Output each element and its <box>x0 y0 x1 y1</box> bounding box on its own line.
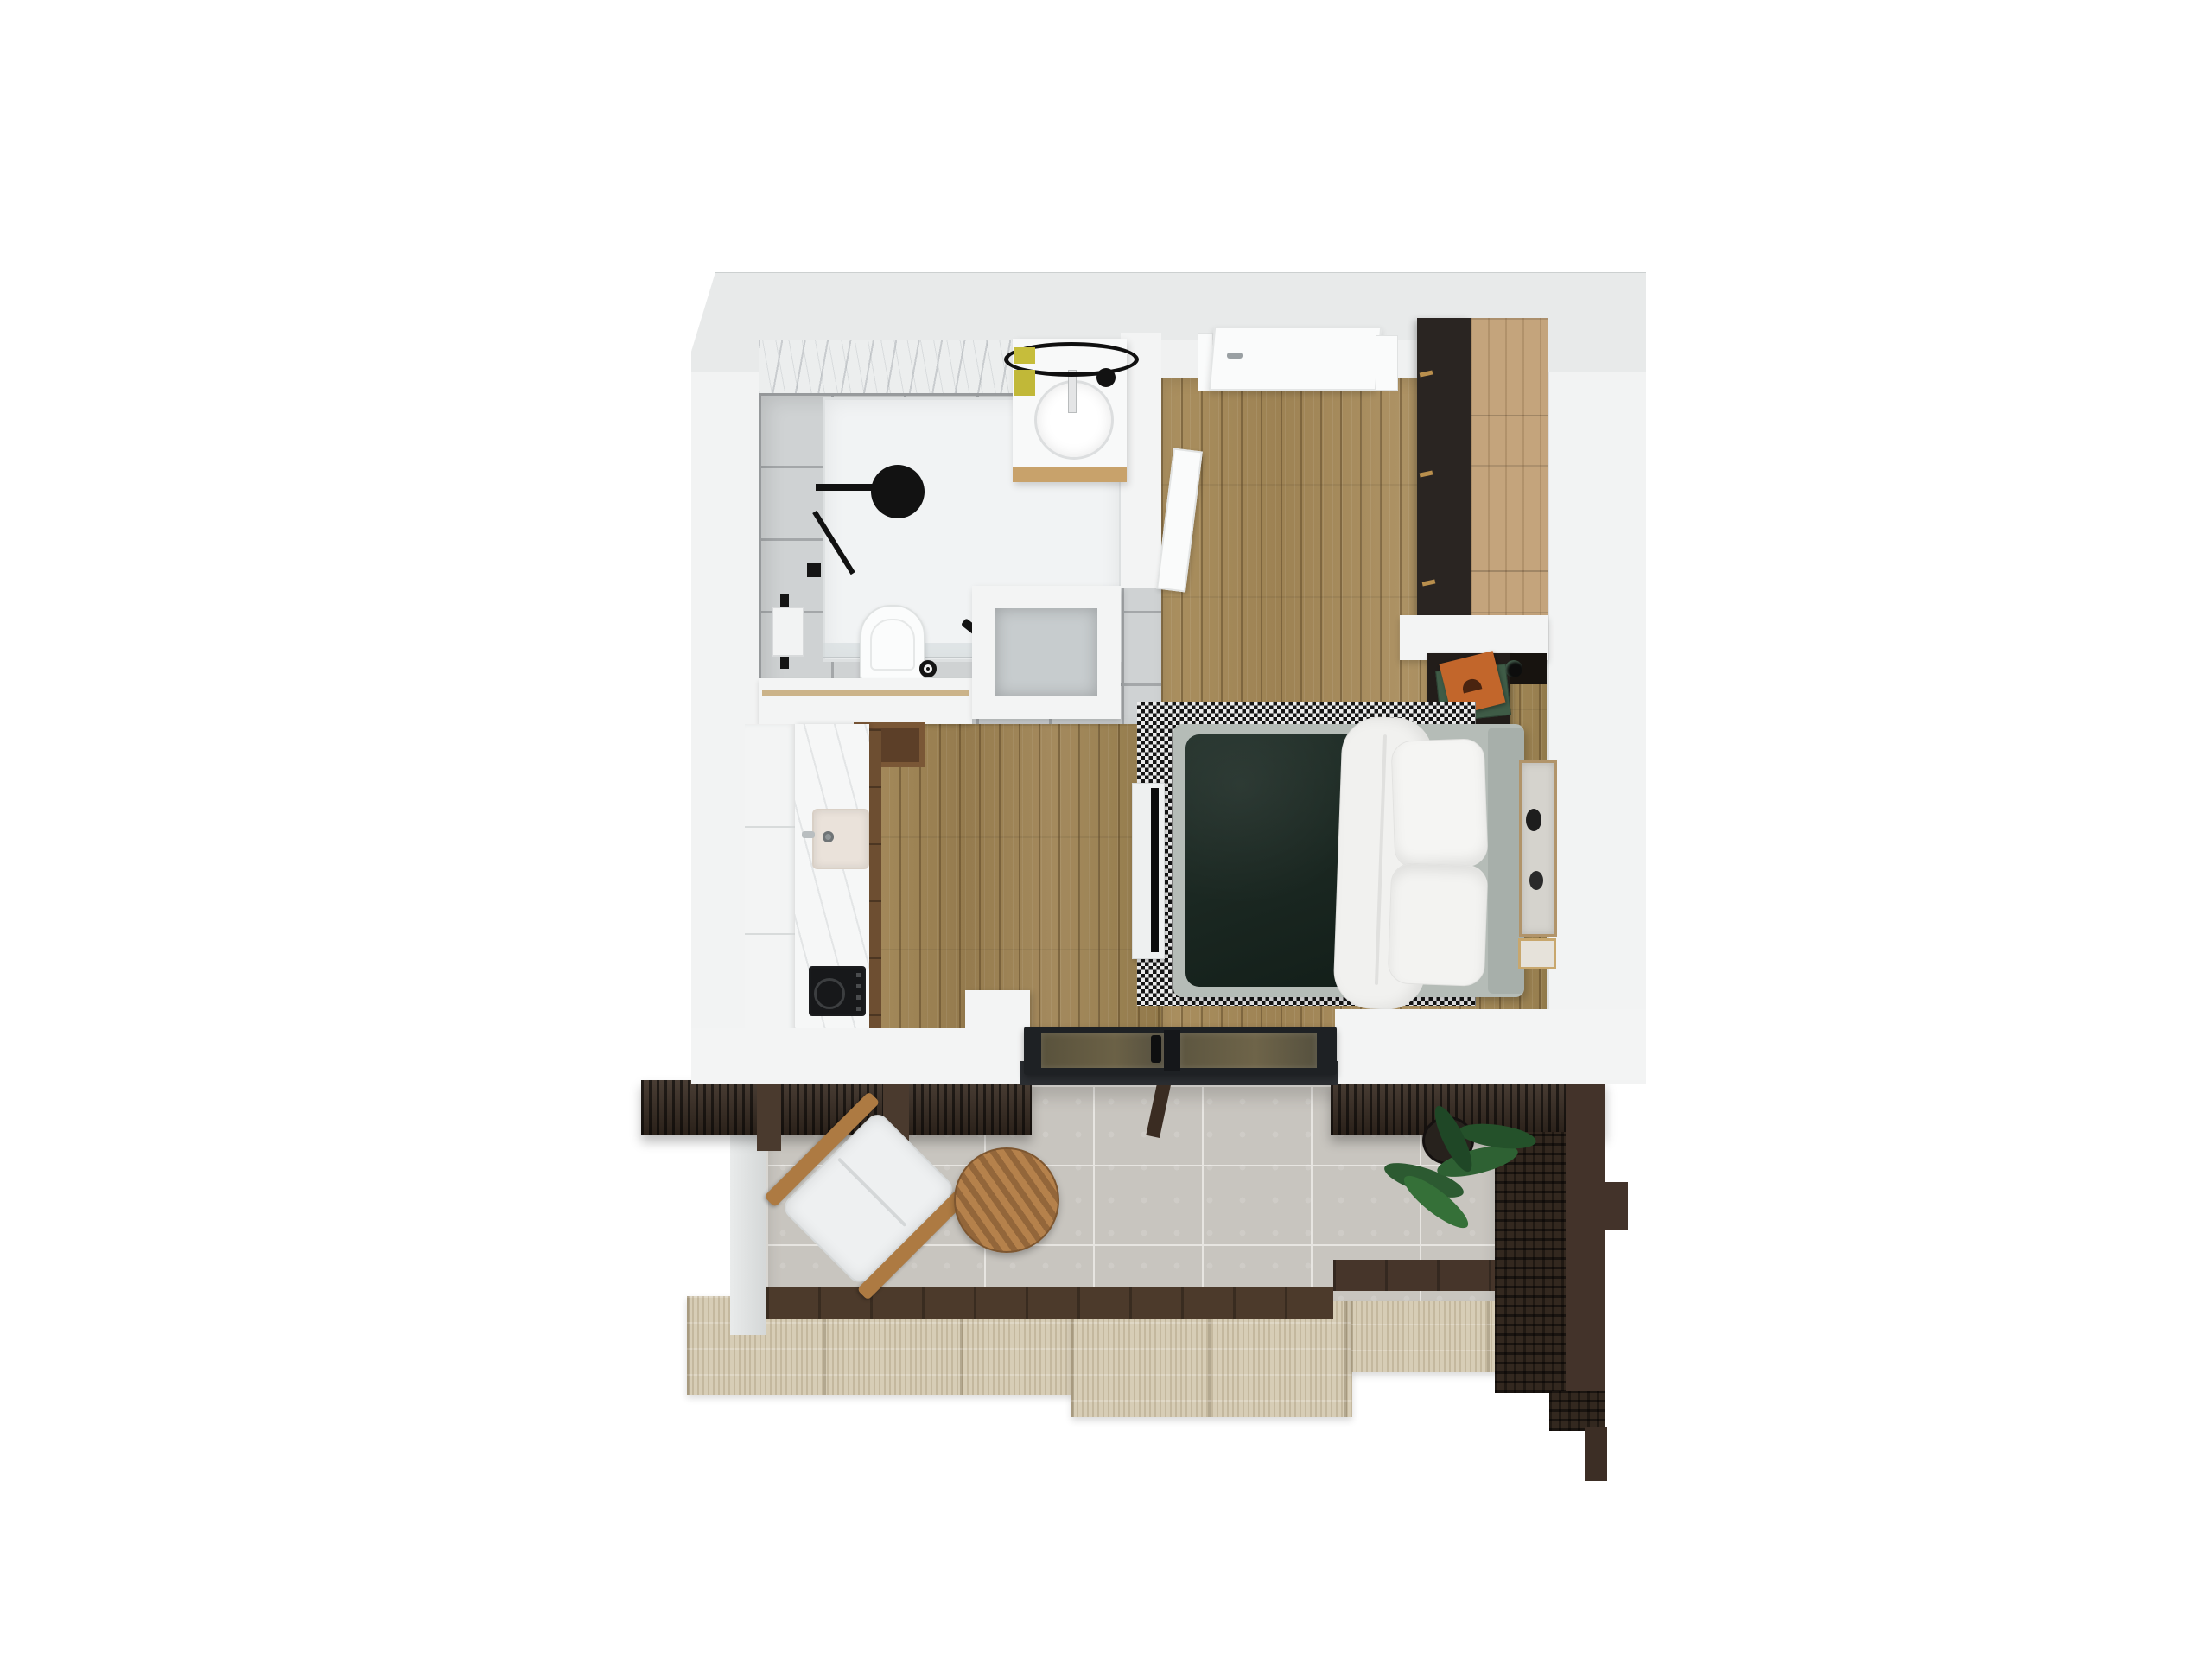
lattice-bottom-block <box>1549 1391 1605 1431</box>
kitchen-faucet <box>802 831 815 838</box>
bathroom-wood-shelf-line <box>762 690 969 696</box>
sink-drain <box>823 831 834 842</box>
wardrobe-dark-doors <box>1417 318 1471 615</box>
corridor-floor-shade <box>880 724 1161 1028</box>
bathroom-east-wall <box>1121 333 1161 588</box>
wardrobe-panel-seam-2 <box>1471 570 1548 572</box>
sliding-door-stile <box>1164 1030 1180 1071</box>
wall-art-abstract <box>1519 760 1557 937</box>
entry-door-jamb-right <box>1376 335 1398 391</box>
south-wall-right <box>1335 1009 1646 1080</box>
lattice-foot-post <box>1585 1427 1607 1481</box>
towel-yellow-top <box>1014 347 1035 364</box>
shower-mixer <box>807 563 821 577</box>
wall-lamp-lens <box>1505 660 1522 677</box>
cooktop-knob-dots <box>856 973 861 1011</box>
entry-door-handle <box>1227 353 1243 359</box>
entry-door-leaf <box>1209 327 1382 391</box>
bed-pillow-1 <box>1390 738 1488 869</box>
towel-yellow-bottom <box>1014 370 1035 396</box>
tv-screen <box>1151 788 1159 952</box>
toilet-paper-holder <box>919 660 937 677</box>
deck-edge-left <box>766 1287 1333 1319</box>
vanity-wood-base <box>1013 467 1127 482</box>
wall-art-blob-1 <box>1526 809 1541 831</box>
shower-head <box>871 465 925 518</box>
kitchen-cabinet-face <box>745 724 795 1033</box>
south-wall-left <box>691 1028 1030 1080</box>
kitchen-cabinet-seam-1 <box>745 826 795 828</box>
bathroom-south-wall <box>759 678 972 724</box>
bed-pillow-2 <box>1388 862 1489 987</box>
gold-frame-picture <box>1518 938 1556 969</box>
shower-arm <box>816 484 878 491</box>
vanity-black-jar <box>1096 368 1116 387</box>
sliding-door-glass-right <box>1180 1033 1317 1068</box>
kitchen-sink <box>812 809 869 869</box>
lattice-screen-right <box>1495 1132 1567 1393</box>
frosted-glass-panel <box>995 608 1097 696</box>
floor-plan-render <box>0 0 2212 1659</box>
lattice-side-knob <box>1605 1182 1628 1230</box>
wall-art-blob-2 <box>1529 871 1543 890</box>
hanging-towel <box>772 607 804 657</box>
sliding-door-handle <box>1151 1035 1161 1063</box>
cooktop-burner-ring <box>814 978 845 1009</box>
balcony-round-table <box>954 1147 1059 1253</box>
toilet-seat-line <box>870 619 915 671</box>
sliding-door-glass-left <box>1041 1033 1164 1068</box>
kitchen-cabinet-seam-2 <box>745 933 795 935</box>
deck-edge-right <box>1333 1260 1497 1291</box>
pergola-beam-a <box>757 1080 781 1151</box>
lattice-corner-beam <box>1566 1080 1605 1393</box>
kitchen-wood-front <box>869 729 881 1028</box>
wardrobe-panel-seam-1 <box>1471 415 1548 416</box>
tv-bench <box>1132 783 1165 959</box>
